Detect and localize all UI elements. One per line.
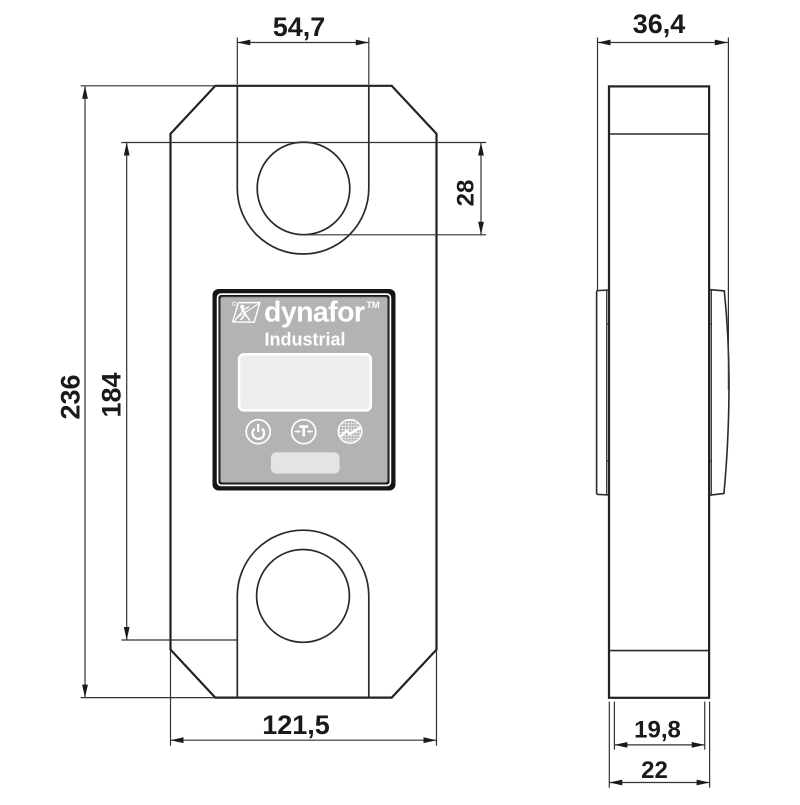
svg-text:19,8: 19,8: [634, 717, 681, 744]
svg-text:Industrial: Industrial: [264, 330, 345, 350]
svg-text:184: 184: [97, 372, 127, 417]
svg-text:121,5: 121,5: [262, 710, 330, 740]
svg-text:28: 28: [453, 180, 480, 207]
svg-text:36,4: 36,4: [633, 9, 686, 39]
svg-text:22: 22: [641, 757, 668, 784]
svg-text:236: 236: [56, 374, 86, 419]
svg-text:54,7: 54,7: [273, 12, 326, 42]
svg-text:dynafor: dynafor: [264, 297, 365, 329]
svg-text:TM: TM: [366, 300, 379, 311]
